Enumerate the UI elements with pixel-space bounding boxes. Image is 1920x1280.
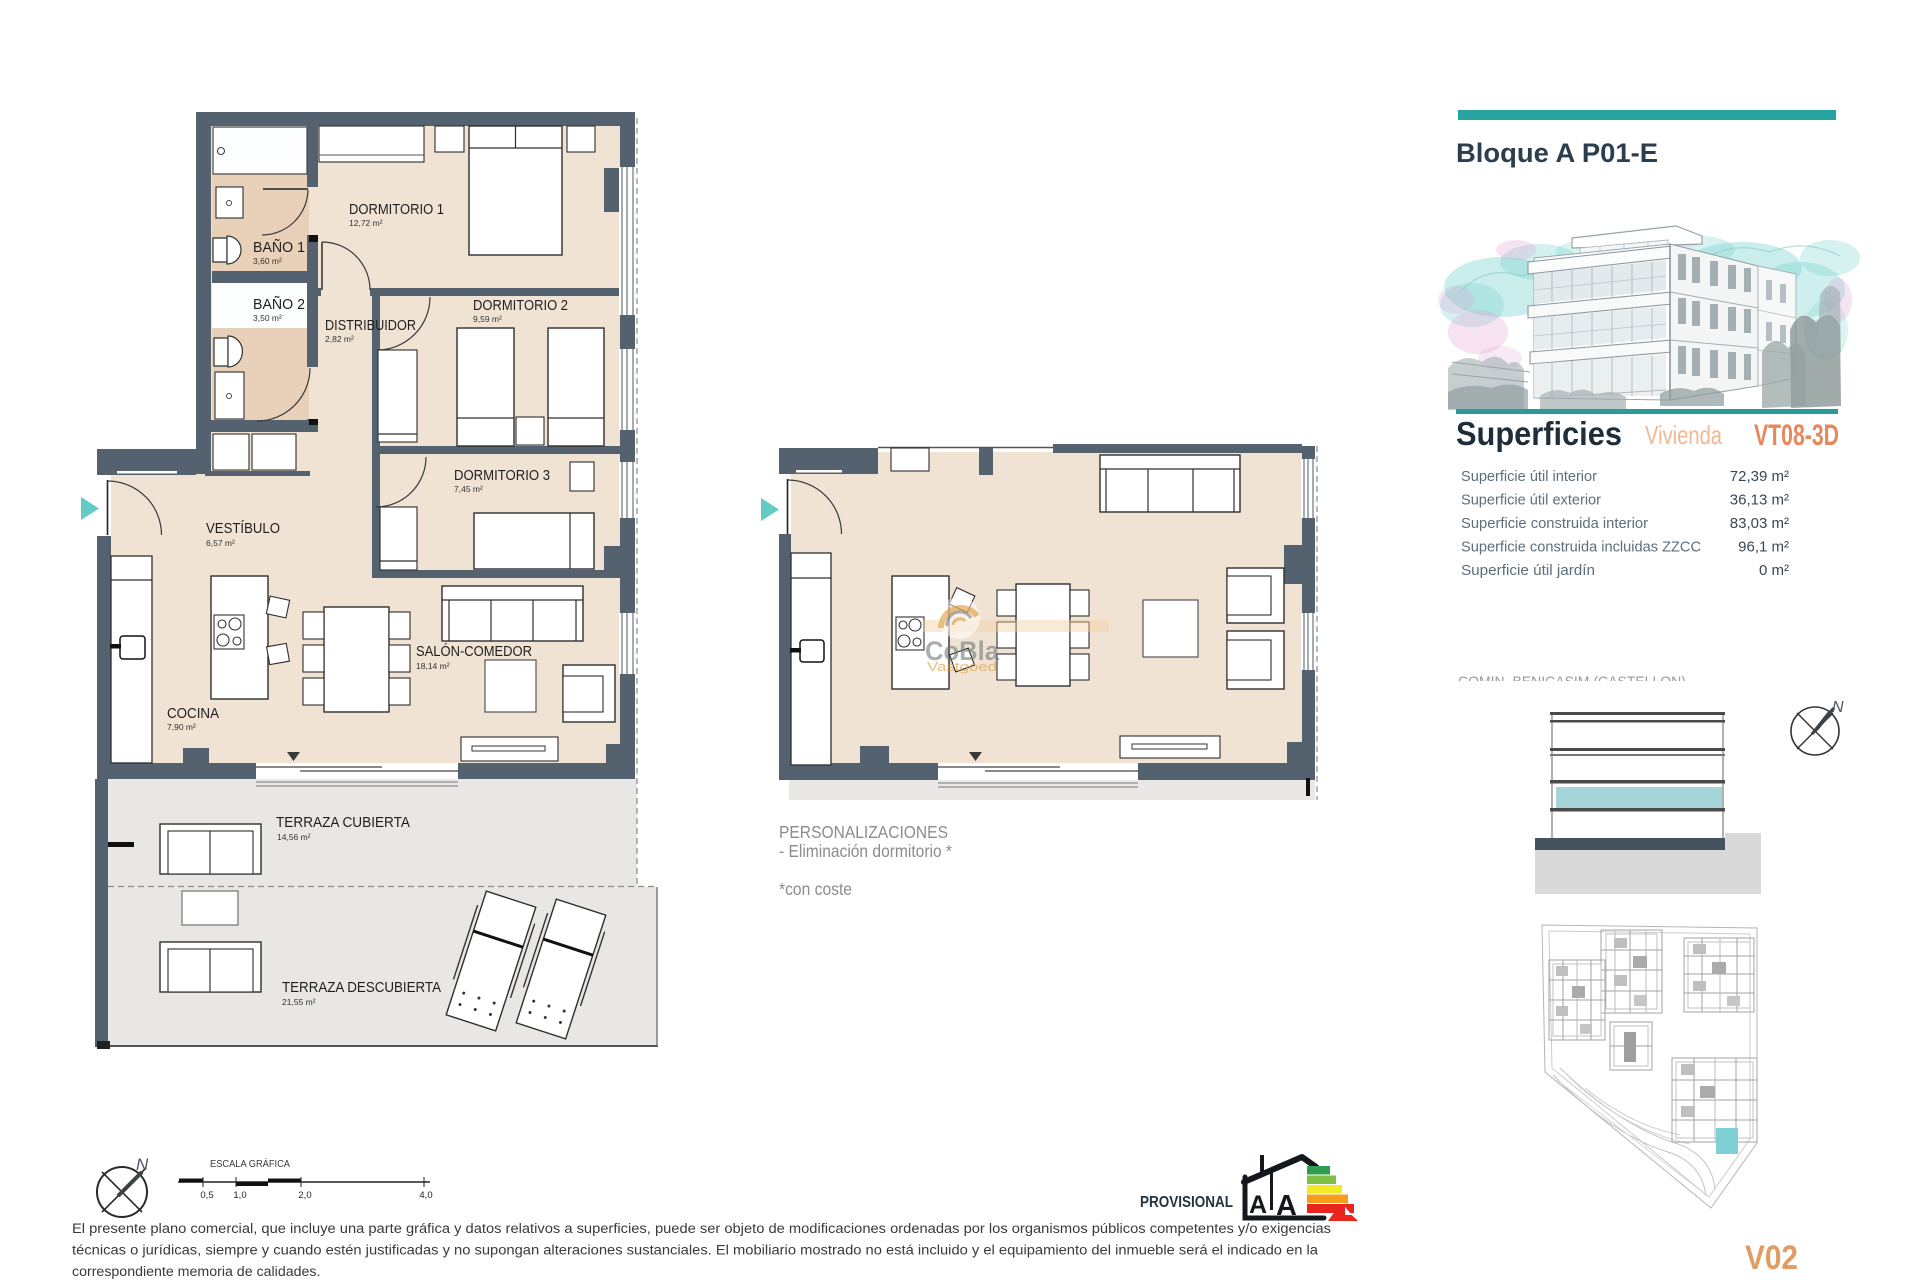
svg-text:Vivienda: Vivienda (1645, 420, 1722, 450)
svg-text:PROVISIONAL: PROVISIONAL (1140, 1194, 1233, 1211)
svg-text:36,13 m²: 36,13 m² (1730, 492, 1789, 509)
svg-text:Vastgoed: Vastgoed (927, 660, 997, 674)
svg-text:Superficie útil interior: Superficie útil interior (1461, 468, 1597, 485)
svg-text:96,1 m²: 96,1 m² (1738, 539, 1789, 556)
svg-text:4,0: 4,0 (419, 1190, 432, 1201)
svg-text:Bloque A P01-E: Bloque A P01-E (1456, 138, 1658, 168)
svg-text:Superficie útil jardín: Superficie útil jardín (1461, 562, 1595, 579)
svg-text:0 m²: 0 m² (1759, 562, 1789, 579)
svg-text:Superficies: Superficies (1456, 415, 1622, 452)
svg-text:VESTÍBULO: VESTÍBULO (206, 520, 280, 537)
svg-text:- Eliminación dormitorio *: - Eliminación dormitorio * (779, 841, 952, 861)
svg-text:correspondiente memoria de cal: correspondiente memoria de calidades. (72, 1264, 320, 1280)
svg-text:El presente plano comercial, q: El presente plano comercial, que incluye… (72, 1221, 1331, 1237)
svg-text:V02: V02 (1745, 1239, 1798, 1277)
svg-text:ESCALA GRÁFICA: ESCALA GRÁFICA (210, 1157, 290, 1170)
svg-text:21,55 m²: 21,55 m² (282, 997, 316, 1007)
svg-text:PERSONALIZACIONES: PERSONALIZACIONES (779, 822, 948, 842)
svg-text:72,39 m²: 72,39 m² (1730, 468, 1789, 485)
svg-text:3,50 m²: 3,50 m² (253, 313, 282, 323)
svg-text:12,72 m²: 12,72 m² (349, 218, 383, 228)
svg-text:BAÑO 1: BAÑO 1 (253, 239, 305, 256)
svg-text:A: A (1249, 1191, 1267, 1219)
svg-text:18,14 m²: 18,14 m² (416, 661, 450, 671)
svg-text:14,56 m²: 14,56 m² (277, 832, 311, 842)
svg-text:DISTRIBUIDOR: DISTRIBUIDOR (325, 318, 416, 334)
svg-text:7,45 m²: 7,45 m² (454, 484, 483, 494)
svg-text:9,59 m²: 9,59 m² (473, 314, 502, 324)
svg-text:TERRAZA DESCUBIERTA: TERRAZA DESCUBIERTA (282, 980, 441, 996)
svg-text:BAÑO 2: BAÑO 2 (253, 296, 305, 313)
svg-text:DORMITORIO 2: DORMITORIO 2 (473, 298, 568, 314)
svg-text:N: N (136, 1155, 149, 1174)
svg-text:1,0: 1,0 (233, 1190, 246, 1201)
svg-text:técnicas o jurídicas, siempre: técnicas o jurídicas, siempre y cuando e… (72, 1243, 1318, 1259)
svg-text:6,57 m²: 6,57 m² (206, 538, 235, 548)
svg-text:Superficie construida incluida: Superficie construida incluidas ZZCC (1461, 539, 1701, 556)
svg-text:2,82 m²: 2,82 m² (325, 334, 354, 344)
svg-text:Superficie construida interior: Superficie construida interior (1461, 515, 1648, 532)
svg-text:TERRAZA CUBIERTA: TERRAZA CUBIERTA (276, 815, 410, 831)
svg-text:*con coste: *con coste (779, 879, 852, 899)
svg-text:COCINA: COCINA (167, 706, 219, 722)
svg-text:DORMITORIO 3: DORMITORIO 3 (454, 468, 550, 484)
svg-text:3,60 m²: 3,60 m² (253, 256, 282, 266)
svg-text:83,03 m²: 83,03 m² (1730, 515, 1789, 532)
svg-text:VT08-3D: VT08-3D (1754, 419, 1839, 452)
svg-text:SALÓN-COMEDOR: SALÓN-COMEDOR (416, 643, 532, 660)
svg-text:A: A (1276, 1190, 1297, 1222)
svg-text:N: N (1832, 699, 1844, 716)
svg-text:DORMITORIO 1: DORMITORIO 1 (349, 202, 444, 218)
svg-text:0,5: 0,5 (200, 1190, 213, 1201)
svg-text:Superficie útil exterior: Superficie útil exterior (1461, 492, 1601, 509)
svg-text:7,90 m²: 7,90 m² (167, 722, 196, 732)
svg-text:2,0: 2,0 (298, 1190, 311, 1201)
